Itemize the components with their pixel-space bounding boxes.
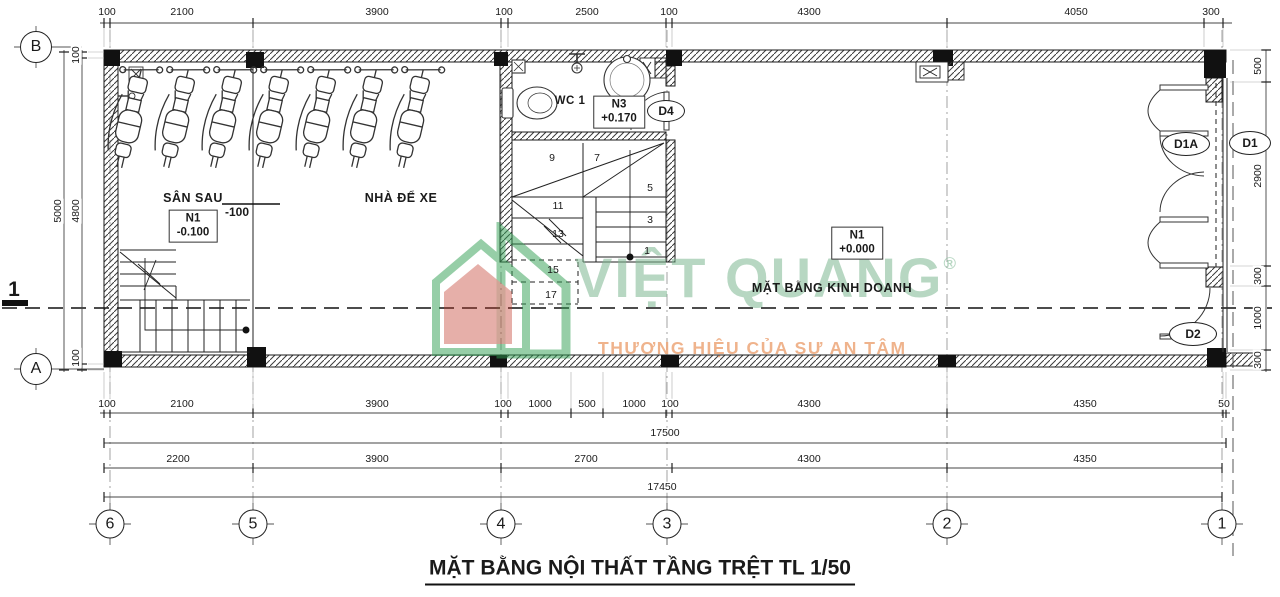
storefront-doors bbox=[1148, 78, 1227, 352]
stair-tread-number: 13 bbox=[552, 228, 564, 240]
motorbike-icon bbox=[333, 58, 398, 172]
grid-bubble-5: 5 bbox=[239, 510, 268, 539]
dim-label: 1000 bbox=[527, 399, 552, 410]
walls bbox=[104, 50, 1254, 367]
grid-bubble-6: 6 bbox=[96, 510, 125, 539]
room-label-san-sau: SÂN SAU bbox=[163, 191, 223, 205]
level-box: N1-0.100 bbox=[169, 210, 218, 243]
grid-bubble-2: 2 bbox=[933, 510, 962, 539]
dim-total-label: 17500 bbox=[649, 428, 680, 439]
watermark-tagline: THƯƠNG HIỆU CỦA SỰ AN TÂM bbox=[598, 338, 907, 359]
motorbike-icon bbox=[380, 58, 445, 172]
floor-plan-drawing: VIỆT QUANG® THƯƠNG HIỆU CỦA SỰ AN TÂM SÂ… bbox=[0, 0, 1280, 597]
stair-tread-number: 11 bbox=[553, 200, 564, 212]
dim-label: 3900 bbox=[364, 399, 389, 410]
dim-label: 50 bbox=[1217, 399, 1231, 410]
stair-tread-number: 9 bbox=[549, 152, 555, 164]
dim-total-label: 17450 bbox=[646, 482, 677, 493]
dim-label: 4050 bbox=[1063, 7, 1088, 18]
dim-label: 1000 bbox=[621, 399, 646, 410]
grid-bubble-B: B bbox=[20, 31, 52, 63]
dim-label: 100 bbox=[97, 7, 117, 18]
dim-label: 4300 bbox=[796, 7, 821, 18]
level-box-tag: N1 bbox=[839, 229, 875, 243]
door-tag-d4: D4 bbox=[647, 100, 685, 122]
dim-label: 2500 bbox=[574, 7, 599, 18]
dim-label: 3900 bbox=[364, 454, 389, 465]
watermark-brand: VIỆT QUANG® bbox=[575, 245, 958, 310]
level-box-value: +0.000 bbox=[839, 243, 875, 257]
motorbikes bbox=[98, 58, 445, 172]
dim-label: 4350 bbox=[1072, 399, 1097, 410]
shopfront-glass bbox=[1223, 78, 1227, 352]
dim-label: 500 bbox=[577, 399, 597, 410]
dim-label: 100 bbox=[494, 7, 514, 18]
level-box-tag: N1 bbox=[177, 212, 210, 226]
dim-label-right: 500 bbox=[1253, 56, 1264, 76]
drawing-title: MẶT BẰNG NỘI THẤT TẦNG TRỆT TL 1/50 bbox=[425, 557, 855, 586]
dim-label-right: 300 bbox=[1253, 350, 1264, 370]
grid-bubble-1: 1 bbox=[1208, 510, 1237, 539]
level-box-value: +0.170 bbox=[601, 112, 637, 126]
dim-label: 2700 bbox=[573, 454, 598, 465]
toilet-tank bbox=[502, 88, 513, 118]
dim-label: 2200 bbox=[165, 454, 190, 465]
stair-tread-number: 1 bbox=[644, 245, 650, 257]
stair-tread-number: 7 bbox=[594, 152, 600, 164]
room-label-shop: MẶT BẰNG KINH DOANH bbox=[752, 281, 912, 295]
dim-label-left: 5000 bbox=[53, 198, 64, 223]
section-marker-label: 1 bbox=[8, 278, 20, 302]
dim-label: 3900 bbox=[364, 7, 389, 18]
yard-stair bbox=[120, 250, 250, 352]
dim-label: 2100 bbox=[169, 399, 194, 410]
level-mark-text: -100 bbox=[224, 206, 250, 218]
dim-label: 4300 bbox=[796, 399, 821, 410]
door-tag-d1a: D1A bbox=[1162, 132, 1210, 156]
door-tag-d2: D2 bbox=[1169, 322, 1217, 346]
dim-label: 4300 bbox=[796, 454, 821, 465]
dim-label: 300 bbox=[1201, 7, 1221, 18]
grid-bubble-A: A bbox=[20, 353, 52, 385]
motorbike-icon bbox=[286, 58, 351, 172]
motorbike-icon bbox=[239, 58, 304, 172]
dim-label-left: 4800 bbox=[71, 198, 82, 223]
motorbike-icon bbox=[192, 58, 257, 172]
level-box: N1+0.000 bbox=[831, 227, 883, 260]
room-label-wc: WC 1 bbox=[555, 95, 586, 107]
stair-tread-number: 17 bbox=[545, 289, 557, 301]
room-label-garage: NHÀ ĐỂ XE bbox=[365, 191, 438, 205]
dim-label-right: 1000 bbox=[1253, 305, 1264, 330]
grid-bubble-3: 3 bbox=[653, 510, 682, 539]
dim-label: 2100 bbox=[169, 7, 194, 18]
stair-tread-number: 3 bbox=[647, 214, 653, 226]
dim-label-left: 100 bbox=[71, 45, 82, 65]
dim-label: 100 bbox=[659, 7, 679, 18]
grid-bubble-4: 4 bbox=[487, 510, 516, 539]
dim-label-right: 2900 bbox=[1253, 163, 1264, 188]
stair-tread-number: 5 bbox=[647, 182, 653, 194]
wall-niche-grid2 bbox=[916, 62, 964, 82]
dim-label-right: 300 bbox=[1253, 266, 1264, 286]
level-box: N3+0.170 bbox=[593, 96, 645, 129]
dim-label-left: 100 bbox=[71, 348, 82, 368]
dim-label: 4350 bbox=[1072, 454, 1097, 465]
level-box-value: -0.100 bbox=[177, 226, 210, 240]
registered-icon: ® bbox=[943, 254, 958, 273]
dim-label: 100 bbox=[97, 399, 117, 410]
stair-tread-number: 15 bbox=[547, 264, 559, 276]
motorbike-icon bbox=[145, 58, 210, 172]
dim-label: 100 bbox=[493, 399, 513, 410]
level-box-tag: N3 bbox=[601, 98, 637, 112]
door-tag-d1: D1 bbox=[1229, 131, 1271, 155]
dim-label: 100 bbox=[660, 399, 680, 410]
